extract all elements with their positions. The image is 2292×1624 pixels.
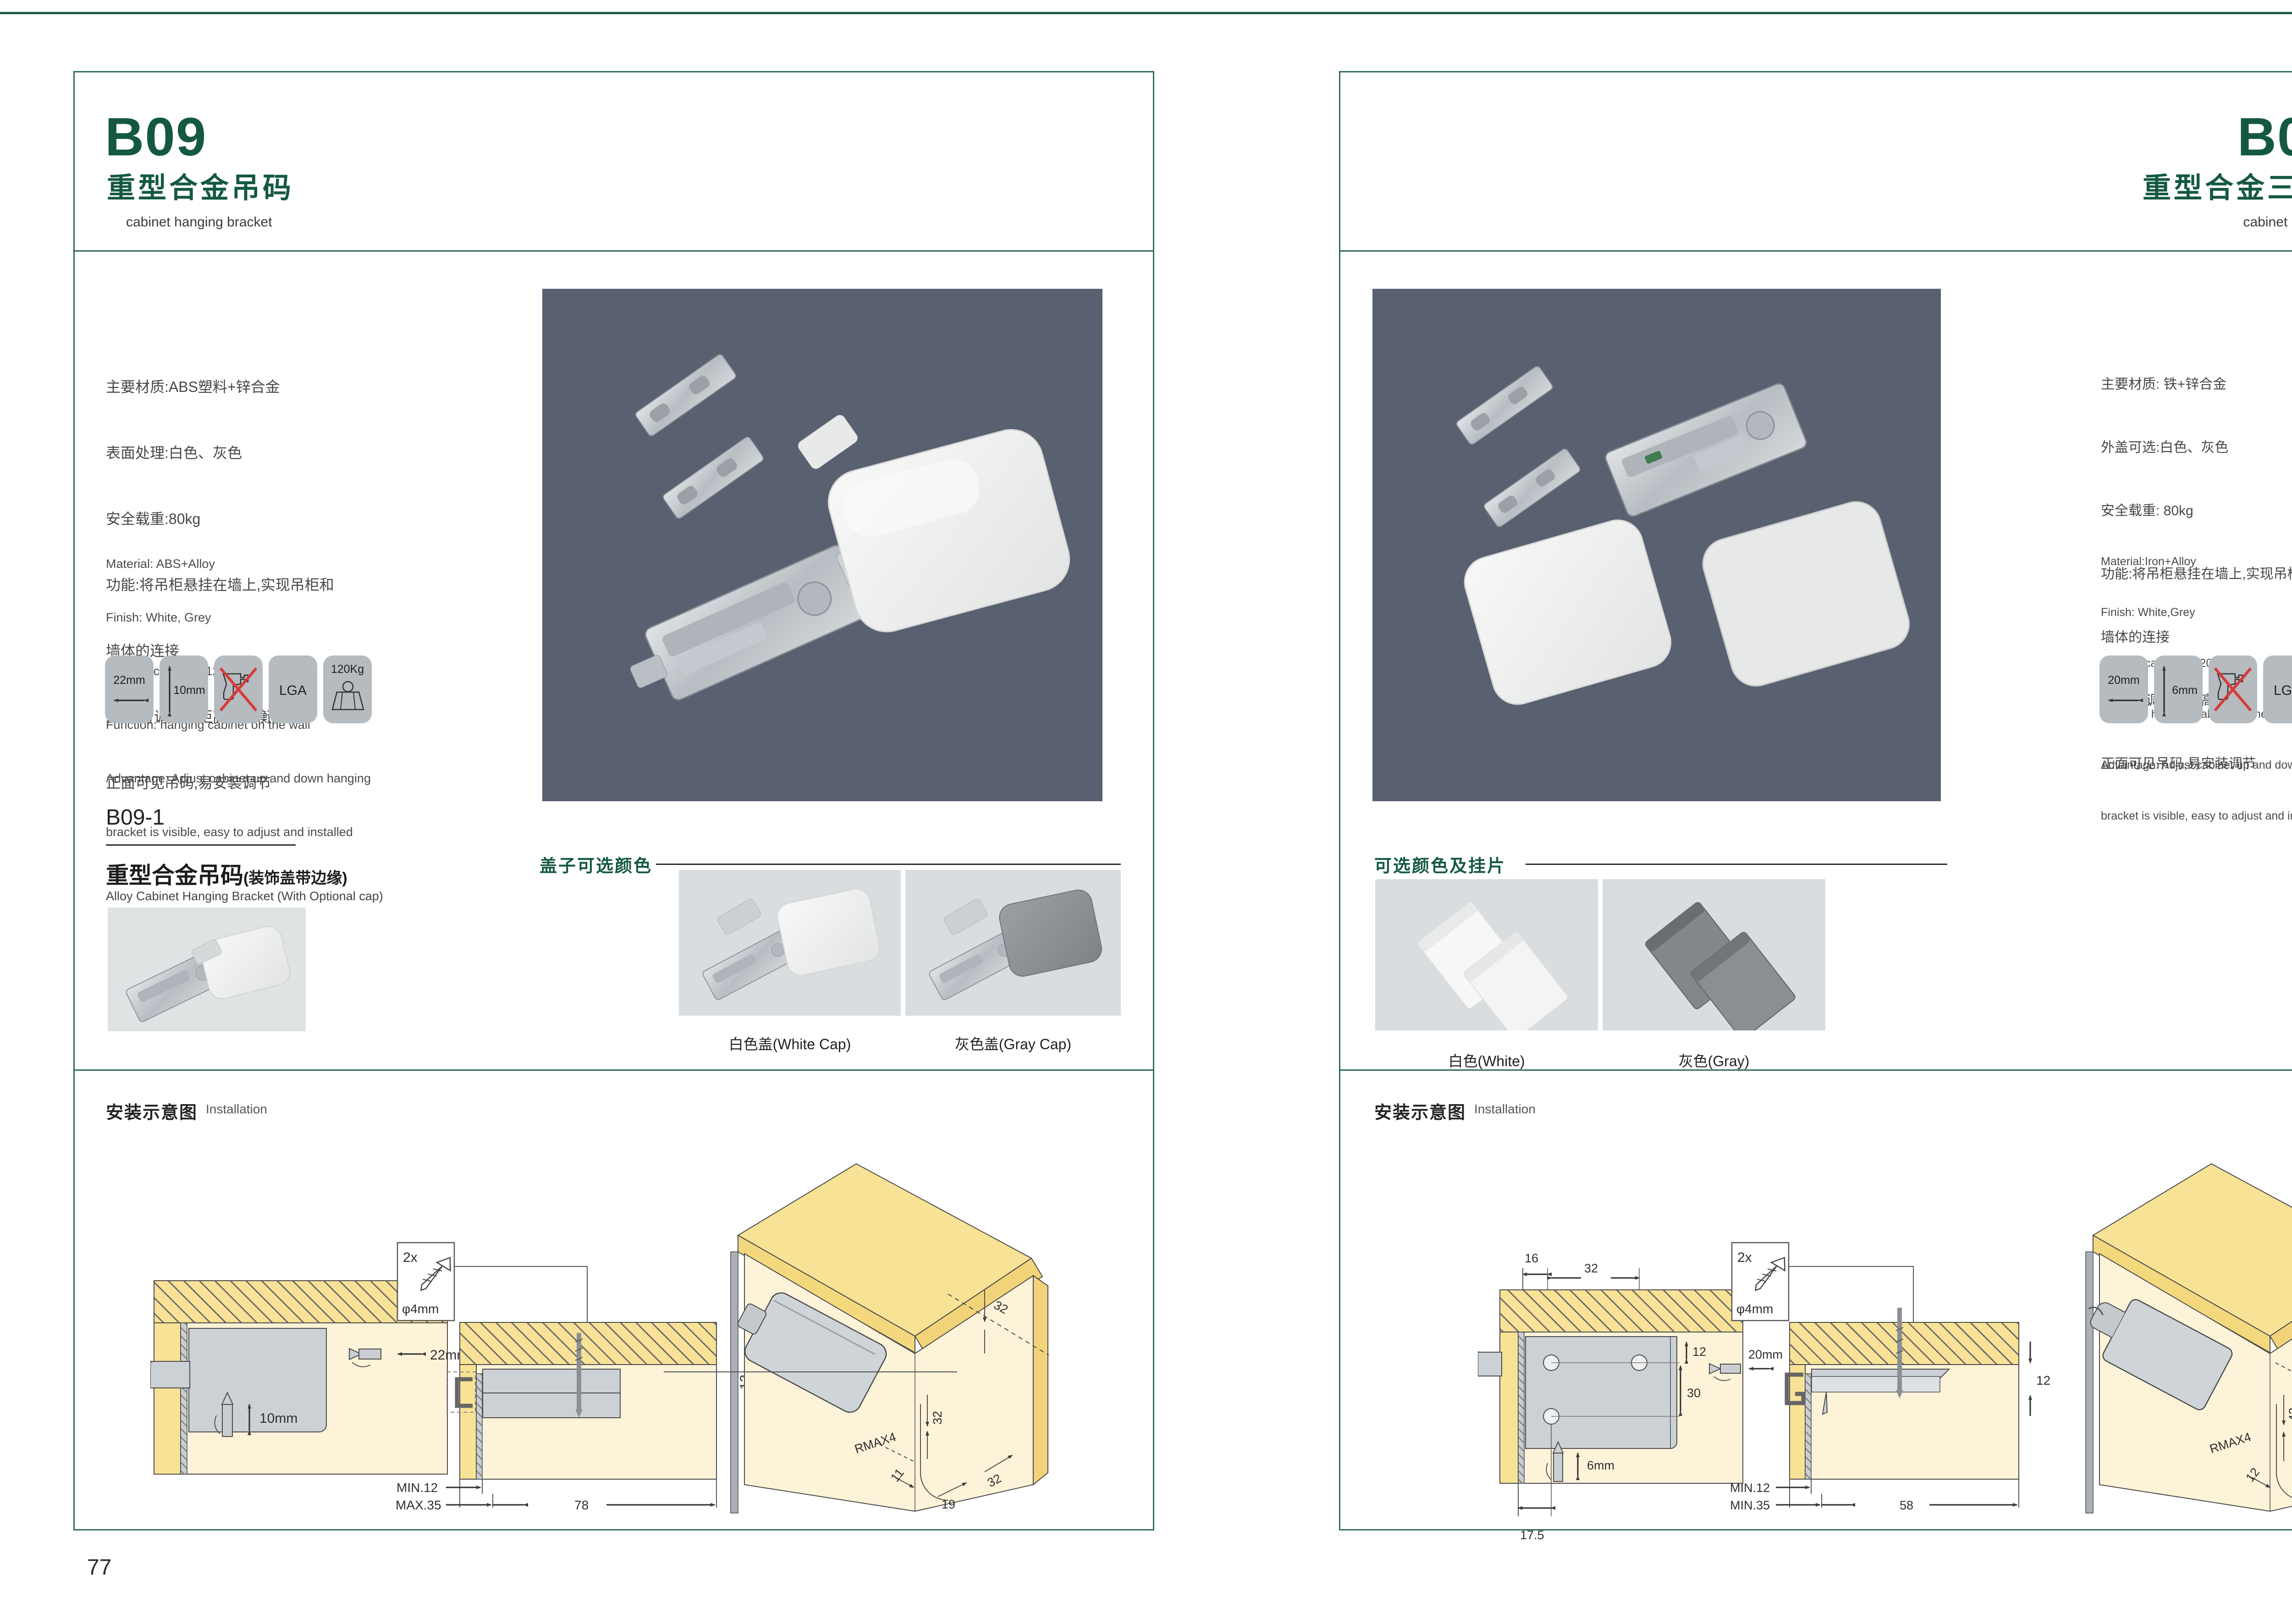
- spec-line: 主要材质:ABS塑料+锌合金: [106, 376, 334, 398]
- feature-badges: 22mm 10mm LGA: [105, 655, 372, 723]
- product-title-en: cabinet hanging bracket: [126, 215, 272, 229]
- badge-width-label: 22mm: [105, 674, 154, 687]
- svg-text:58: 58: [1900, 1498, 1913, 1512]
- badge-width-label: 20mm: [2099, 674, 2148, 687]
- svg-text:32: 32: [931, 1411, 944, 1425]
- svg-text:19: 19: [942, 1497, 955, 1511]
- spec-line: Finish: White,Grey: [2101, 604, 2292, 621]
- no-drill-icon: [2214, 666, 2252, 713]
- badge-load-label: 120Kg: [323, 663, 372, 676]
- spec-line: Finish: White, Grey: [106, 609, 371, 627]
- badge-height: 10mm: [160, 655, 208, 723]
- gray-cap-photo: [905, 870, 1121, 1016]
- svg-text:φ4mm: φ4mm: [1736, 1302, 1773, 1316]
- main-product-render: [542, 289, 1102, 801]
- svg-text:MIN.35: MIN.35: [1730, 1498, 1770, 1512]
- svg-text:2x: 2x: [403, 1250, 418, 1265]
- gray-plate-photo: [1603, 879, 1825, 1030]
- product-title-cn: 重型合金三孔吊码: [2143, 174, 2292, 203]
- white-cap-render: [679, 870, 901, 1016]
- header-rule: [1340, 250, 2292, 252]
- svg-text:6mm: 6mm: [1587, 1459, 1614, 1472]
- install-heading-cn: 安装示意图: [106, 1098, 198, 1123]
- svg-text:10mm: 10mm: [259, 1411, 298, 1426]
- sub-title-suffix: (装饰盖带边缘): [243, 870, 347, 887]
- page-left: B09 重型合金吊码 cabinet hanging bracket 主要材质:…: [73, 71, 1154, 1530]
- svg-text:32: 32: [1584, 1261, 1598, 1275]
- badge-lga: LGA: [269, 655, 317, 723]
- spec-line: 主要材质: 铁+锌合金: [2101, 374, 2292, 395]
- weight-icon: [330, 679, 366, 716]
- cap-colors-heading: 盖子可选颜色: [540, 852, 652, 877]
- badge-lga-label: LGA: [2263, 683, 2292, 699]
- white-plate-render: [1375, 879, 1598, 1030]
- main-product-photo: [1372, 289, 1941, 801]
- install-heading-cn: 安装示意图: [1374, 1098, 1466, 1123]
- install-diagram-2: 2x φ4mm: [1730, 1239, 2051, 1514]
- white-cap-label: 白色盖(White Cap): [679, 1033, 901, 1054]
- gray-cap-render: [905, 870, 1121, 1016]
- spec-line: 安全载重: 80kg: [2101, 501, 2292, 522]
- cap-colors-rule: [656, 864, 1121, 865]
- product-code: B09: [105, 110, 207, 164]
- product-title-cn: 重型合金吊码: [107, 174, 294, 203]
- white-plate-label: 白色(White): [1375, 1050, 1598, 1071]
- sub-title-main: 重型合金吊码: [106, 863, 243, 888]
- install-heading-en: Installation: [1474, 1102, 1536, 1117]
- badge-lga-label: LGA: [269, 683, 317, 699]
- svg-text:16: 16: [1525, 1251, 1538, 1265]
- badge-height-label: 10mm: [165, 684, 214, 697]
- spec-line: bracket is visible, easy to adjust and i…: [2101, 808, 2292, 825]
- install-diagram-3: 12 16 42 RMAX4 12 17.5 32: [2019, 1156, 2292, 1514]
- screw-spec-box: 2x φ4mm: [1732, 1243, 1791, 1321]
- svg-text:17.5: 17.5: [1520, 1528, 1544, 1542]
- width-arrow-icon: [110, 696, 149, 705]
- width-arrow-icon: [2104, 696, 2143, 705]
- install-diagram-3: 32 32 RMAX4 11 19 32: [664, 1156, 1049, 1514]
- svg-text:MIN.12: MIN.12: [397, 1481, 438, 1495]
- catalog-spread: B09 重型合金吊码 cabinet hanging bracket 主要材质:…: [0, 0, 2292, 1624]
- screw-spec-box: 2x φ4mm: [397, 1243, 457, 1321]
- sub-product-title-cn: 重型合金吊码(装饰盖带边缘): [106, 857, 347, 890]
- badge-load: 120Kg: [323, 655, 372, 723]
- sub-product-title-en: Alloy Cabinet Hanging Bracket (With Opti…: [106, 889, 383, 903]
- header-rule: [75, 250, 1153, 252]
- badge-width: 20mm: [2099, 655, 2148, 723]
- gray-cap-label: 灰色盖(Gray Cap): [905, 1033, 1121, 1054]
- no-drill-icon: [220, 666, 257, 713]
- svg-text:φ4mm: φ4mm: [402, 1302, 439, 1316]
- main-product-render: [1372, 289, 1941, 801]
- sub-product-photo: [108, 908, 306, 1031]
- page-right: B09-3 重型合金三孔吊码 cabinet hanging bracket 主…: [1339, 71, 2292, 1530]
- page-number-left: 77: [87, 1555, 111, 1580]
- svg-text:MAX.35: MAX.35: [396, 1498, 441, 1512]
- install-heading-en: Installation: [206, 1102, 267, 1117]
- badge-width: 22mm: [105, 655, 154, 723]
- gray-plate-render: [1603, 879, 1825, 1030]
- spec-line: Advantage: Adjust cabinet up and down ha…: [2101, 757, 2292, 774]
- spec-line: Material: ABS+Alloy: [106, 555, 371, 573]
- product-code: B09-3: [2237, 110, 2292, 164]
- svg-text:MIN.12: MIN.12: [1730, 1481, 1770, 1495]
- main-product-photo: [542, 289, 1102, 801]
- cap-colors-heading: 可选颜色及挂片: [1374, 852, 1506, 877]
- install-section-rule: [75, 1069, 1153, 1071]
- sub-product-rule: [106, 844, 296, 846]
- svg-text:42: 42: [2286, 1408, 2292, 1421]
- svg-text:78: 78: [574, 1498, 589, 1512]
- sub-product-render: [108, 908, 306, 1031]
- svg-text:30: 30: [1687, 1386, 1701, 1400]
- feature-badges: 20mm 6mm LGA: [2099, 655, 2292, 723]
- badge-height: 6mm: [2154, 655, 2203, 723]
- svg-text:12: 12: [1692, 1345, 1706, 1359]
- top-accent-rule: [0, 12, 2292, 14]
- product-title-en: cabinet hanging bracket: [2243, 215, 2292, 229]
- badge-height-label: 6mm: [2160, 684, 2209, 697]
- spec-line: Material:Iron+Alloy: [2101, 553, 2292, 570]
- sub-product-code: B09-1: [106, 805, 165, 830]
- spec-line: 表面处理:白色、灰色: [106, 442, 334, 464]
- gray-plate-label: 灰色(Gray): [1603, 1050, 1825, 1071]
- white-plate-photo: [1375, 879, 1598, 1030]
- install-section-rule: [1340, 1069, 2292, 1071]
- badge-no-drill: [2209, 655, 2257, 723]
- badge-no-drill: [214, 655, 263, 723]
- badge-lga: LGA: [2263, 655, 2292, 723]
- svg-text:2x: 2x: [1737, 1250, 1752, 1265]
- spec-line: Advantage: Adjust cabinet up and down ha…: [106, 770, 371, 787]
- white-cap-photo: [679, 870, 901, 1016]
- spec-line: 外盖可选:白色、灰色: [2101, 437, 2292, 458]
- cap-colors-rule: [1526, 864, 1947, 865]
